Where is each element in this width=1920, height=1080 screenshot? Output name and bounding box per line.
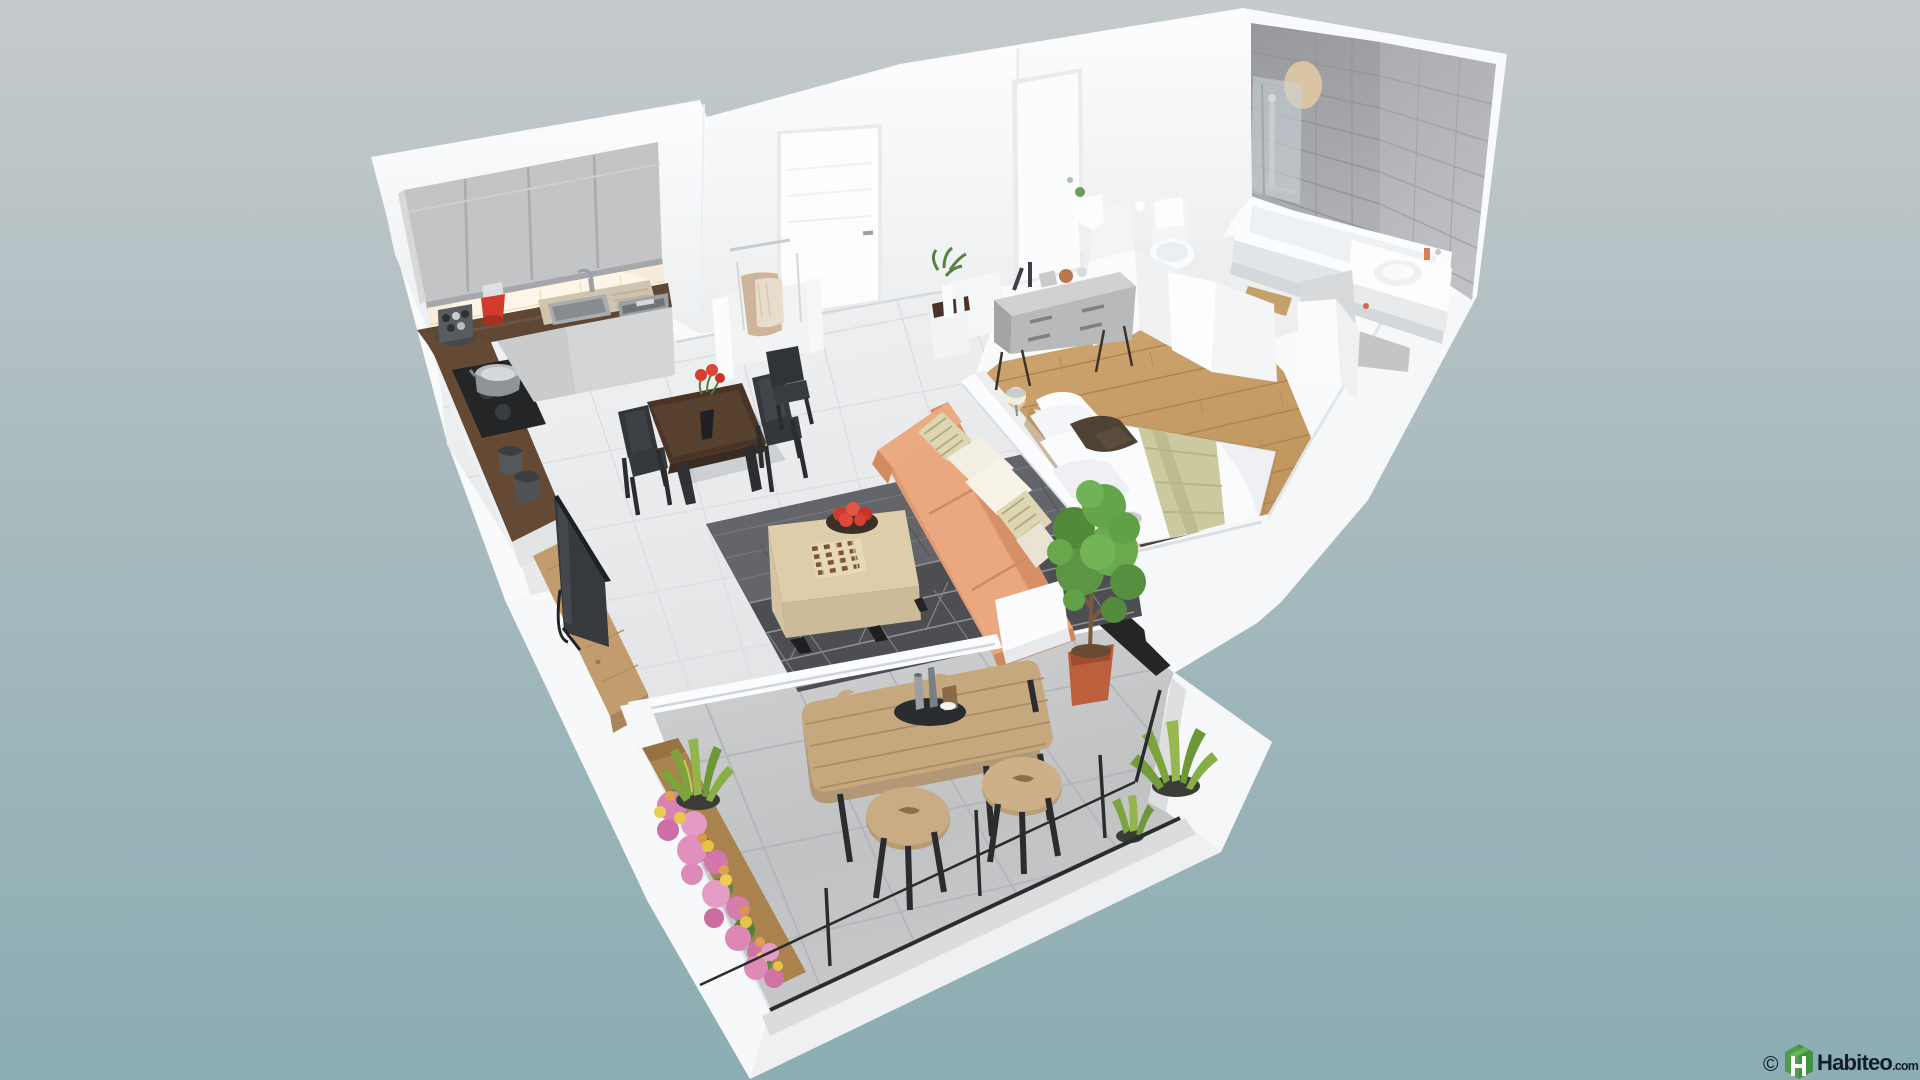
svg-text:©: © <box>1763 1053 1779 1076</box>
